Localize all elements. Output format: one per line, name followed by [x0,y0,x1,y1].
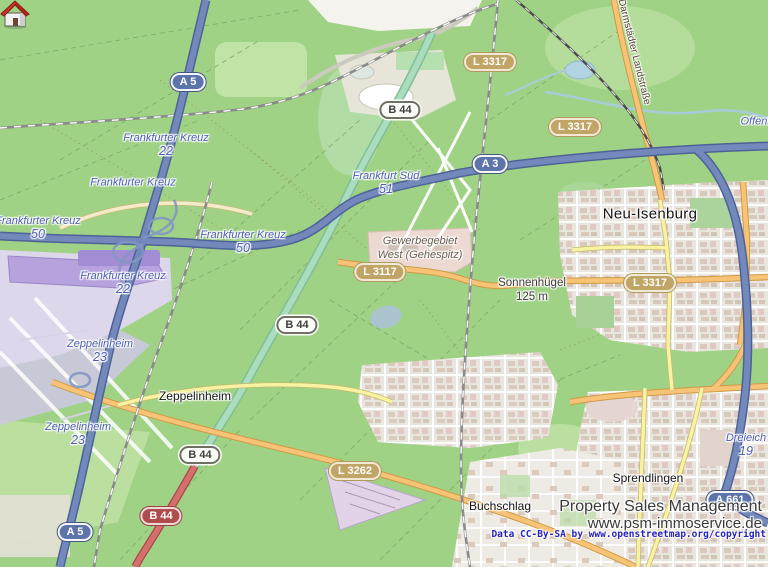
junction-label: Frankfurter Kreuz 50 [200,229,286,255]
road-badge-l3317: L 3317 [549,118,601,136]
road-badge-a3: A 3 [473,155,508,173]
junction-label: Frankfurter Kreuz 50 [0,215,81,241]
road-badge-a5: A 5 [171,73,206,91]
town-label-sprendlingen: Sprendlingen [613,471,684,485]
industrial-area-label: Gewerbegebiet West (Gehespitz) [378,234,463,262]
junction-label: Zeppelinheim 23 [45,421,111,447]
junction-label: Zeppelinheim 23 [67,338,133,364]
junction-label: Frankfurter Kreuz 22 [80,270,166,296]
town-label-neu-isenburg: Neu-Isenburg [603,206,698,223]
map-viewport[interactable]: Frankfurter Kreuz 22 Frankfurter Kreuz F… [0,0,768,567]
town-label-zeppelinheim: Zeppelinheim [159,389,231,403]
junction-label: Offenb [740,116,768,129]
osm-copyright-text[interactable]: Data CC-By-SA by www.openstreetmap.org/c… [491,529,766,540]
junction-label: Dreieich 19 [726,432,766,458]
junction-label: Frankfurter Kreuz [90,177,176,190]
junction-label: Frankfurter Kreuz 22 [123,132,209,158]
road-badge-b44: B 44 [276,316,317,334]
road-badge-b44-red: B 44 [140,507,181,525]
junction-label: Frankfurt Süd 51 [353,170,420,196]
road-badge-b44: B 44 [179,446,220,464]
road-badge-l3317: L 3317 [624,274,676,292]
road-badge-l3317: L 3317 [464,53,516,71]
road-badge-l3262: L 3262 [329,462,381,480]
watermark-company: Property Sales Management [559,498,762,516]
road-badge-l3117: L 3117 [354,263,405,281]
hill-label: Sonnenhügel 125 m [498,276,566,304]
town-label-buchschlag: Buchschlag [469,499,531,513]
house-marker-icon[interactable] [0,0,31,29]
road-badge-b44: B 44 [379,101,420,119]
road-badge-a5: A 5 [58,523,93,541]
